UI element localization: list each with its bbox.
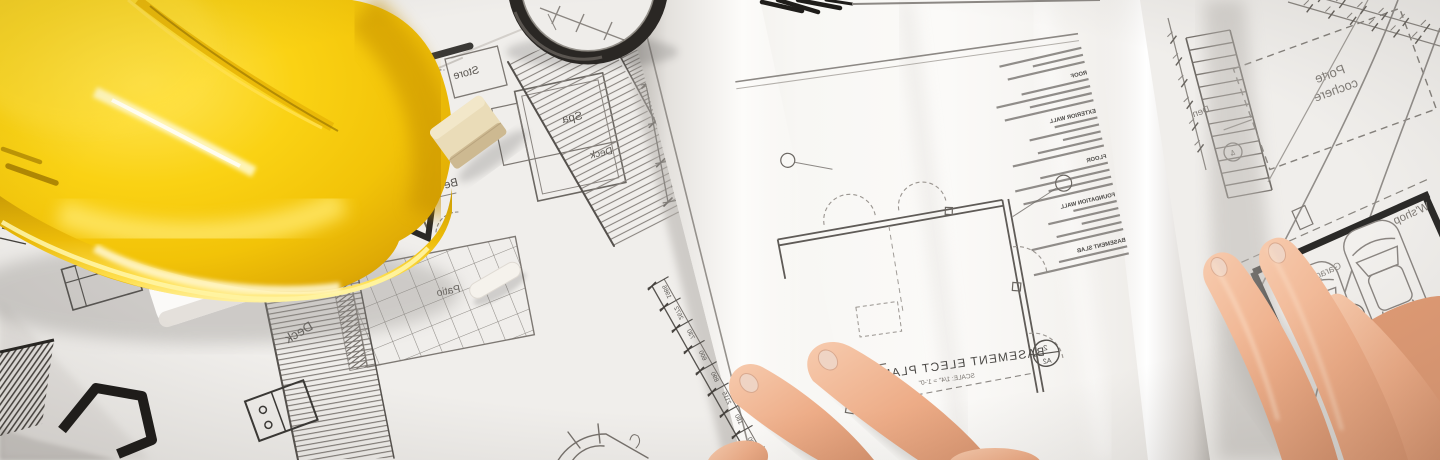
blueprint-photo: Store Spa Deck Bed 3 Patio Deck 43903130… bbox=[0, 0, 1440, 460]
photo-scene: Store Spa Deck Bed 3 Patio Deck 43903130… bbox=[0, 0, 1440, 460]
vignette bbox=[0, 0, 1440, 460]
